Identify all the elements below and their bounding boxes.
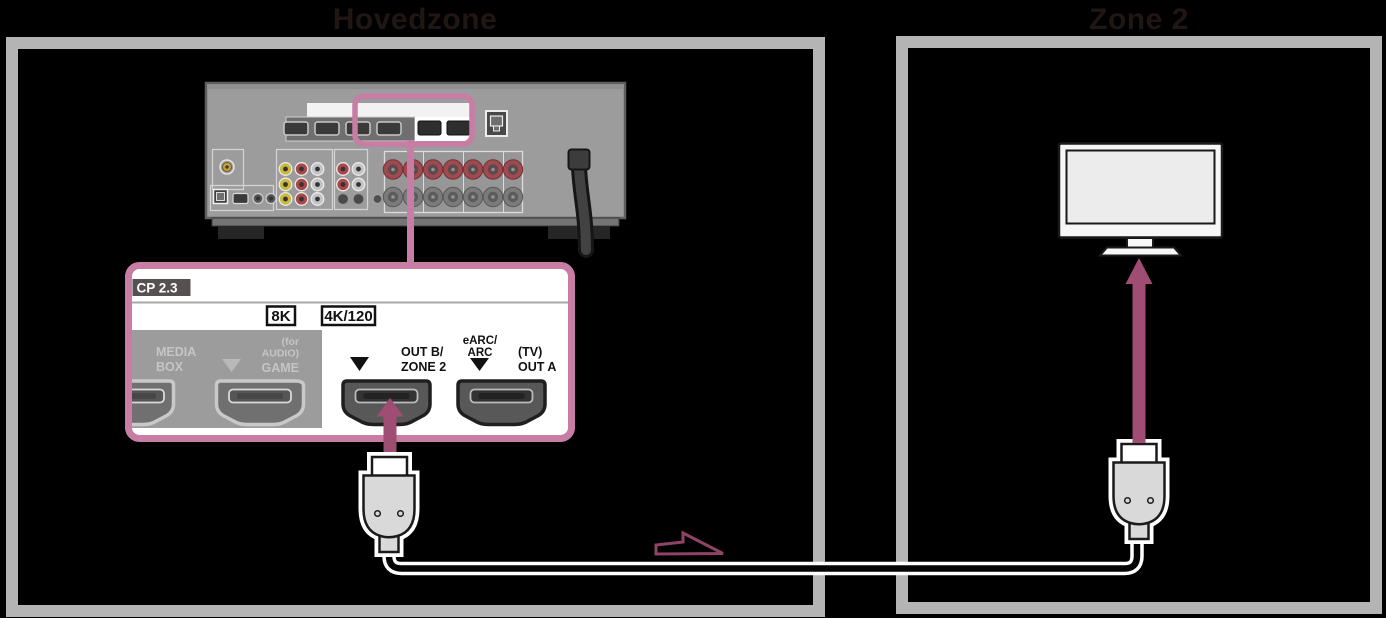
media-box-label-line2: BOX — [156, 360, 184, 374]
zone2-label: Zone 2 — [1089, 3, 1189, 36]
av-receiver — [206, 83, 625, 250]
tv-stand-base — [1100, 248, 1181, 256]
hdmi-in-port — [346, 122, 370, 135]
out-a-label-line1: (TV) — [518, 345, 542, 359]
game-label-line3: GAME — [262, 361, 300, 375]
hdmi-port-out-a — [458, 381, 545, 425]
badge-4k120-label: 4K/120 — [324, 308, 372, 325]
hdmi-port-row — [284, 117, 470, 141]
receiver-base — [212, 218, 619, 226]
tv-screen — [1067, 151, 1215, 224]
hdmi-out-b-port-small — [418, 121, 441, 135]
earc-label-line2: ARC — [468, 347, 493, 359]
callout-connector-line — [407, 140, 414, 266]
ethernet-port — [486, 111, 507, 136]
media-box-label-line1: MEDIA — [156, 345, 196, 359]
hdmi-callout-panel: CP 2.3 8K 4K/120 MEDIA BOX (for AUDIO) G… — [95, 266, 572, 439]
out-b-label-line1: OUT B/ — [401, 345, 444, 359]
receiver-top-edge — [207, 84, 624, 89]
main-zone-label: Hovedzone — [333, 3, 498, 36]
connection-diagram: Hovedzone Zone 2 — [0, 0, 1386, 618]
hdmi-out-a-port-small — [447, 121, 470, 135]
earc-label-line1: eARC/ — [463, 335, 498, 347]
badge-8k-label: 8K — [271, 308, 290, 325]
usb-port — [233, 194, 248, 204]
rear-label-strip — [307, 103, 470, 118]
hdmi-in-port — [284, 122, 308, 135]
game-label-line2: AUDIO) — [262, 348, 299, 360]
cp23-badge-label: CP 2.3 — [137, 281, 179, 296]
out-b-label-line2: ZONE 2 — [401, 360, 446, 374]
game-label-line1: (for — [282, 336, 300, 348]
tv-stand-neck — [1127, 238, 1153, 248]
hdmi-port-game — [217, 381, 304, 425]
hdmi-in-port — [315, 122, 339, 135]
out-a-label-line2: OUT A — [518, 360, 556, 374]
subwoofer-jack — [373, 195, 382, 204]
receiver-foot-left — [218, 226, 264, 239]
composite-av-jacks — [279, 163, 324, 206]
tv — [1059, 144, 1222, 256]
speaker-terminals — [383, 152, 522, 213]
hdmi-in-port — [377, 122, 401, 135]
